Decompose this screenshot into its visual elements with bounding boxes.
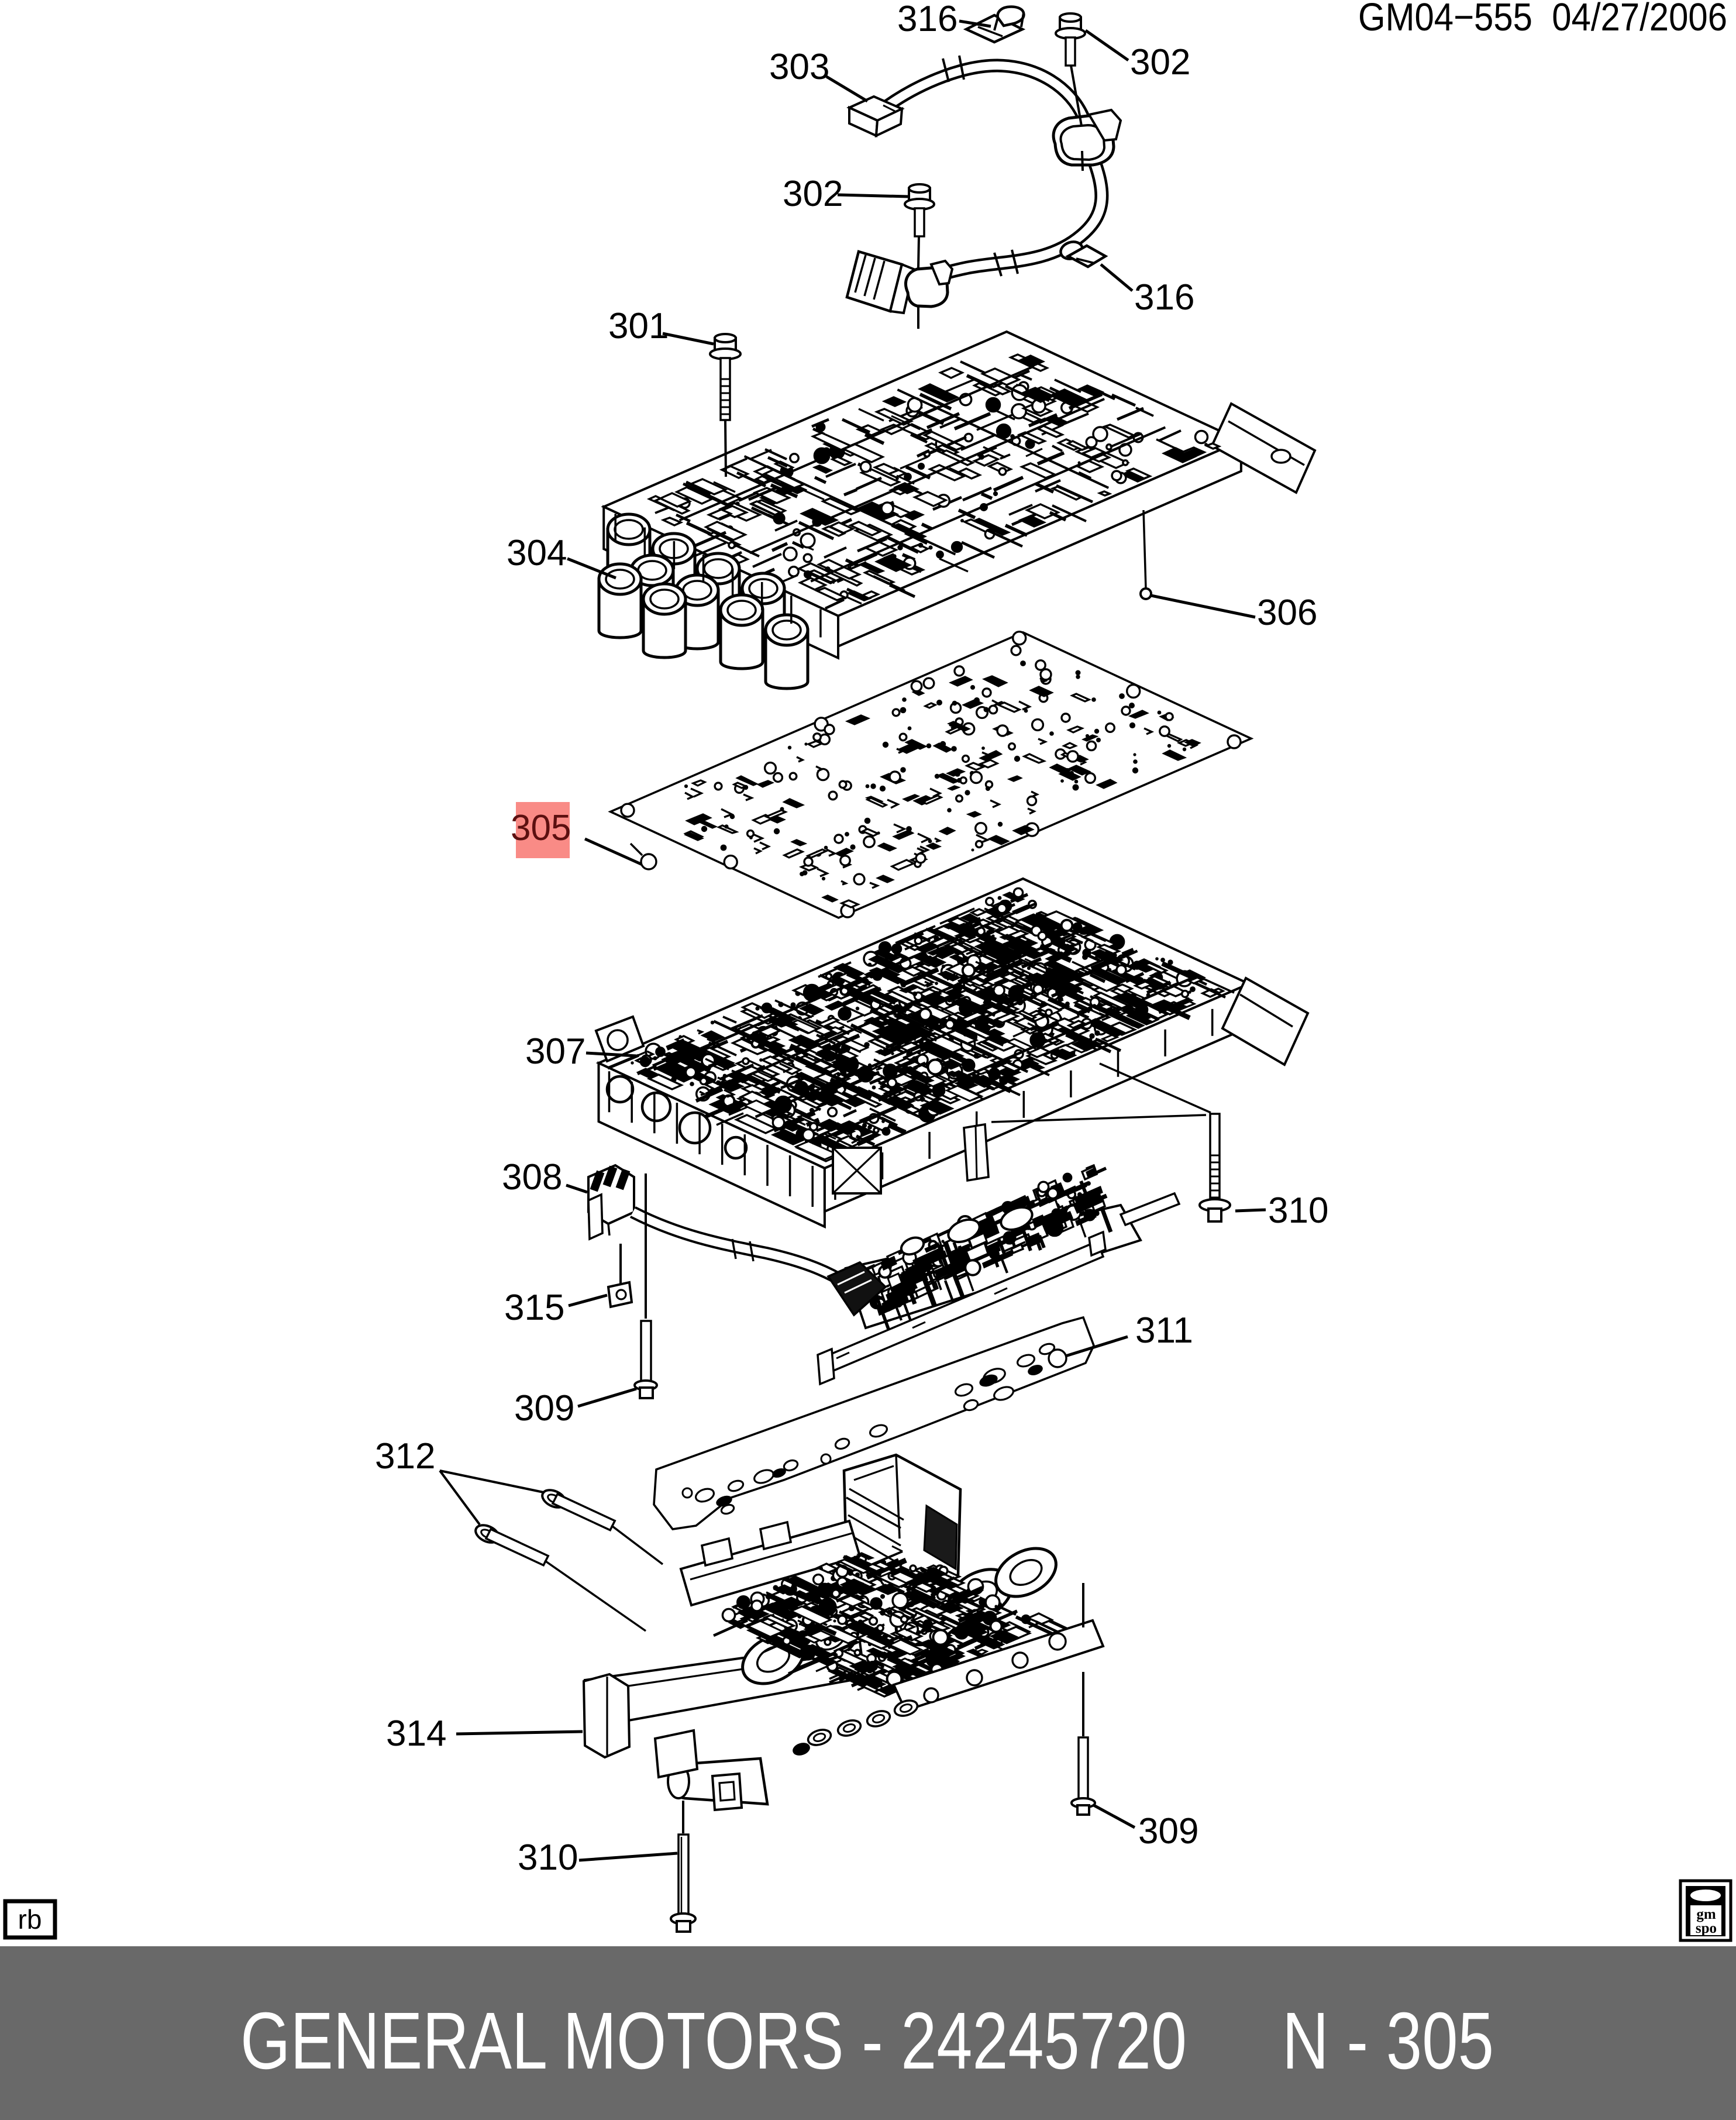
svg-text:315: 315 xyxy=(504,1288,564,1328)
svg-text:310: 310 xyxy=(518,1837,578,1878)
svg-text:314: 314 xyxy=(386,1713,446,1754)
svg-text:302: 302 xyxy=(783,174,843,214)
svg-text:316: 316 xyxy=(1134,277,1194,318)
svg-text:rb: rb xyxy=(18,1904,42,1935)
svg-text:309: 309 xyxy=(514,1388,574,1429)
svg-text:301: 301 xyxy=(608,306,669,346)
svg-text:GM04−555 04/27/2006: GM04−555 04/27/2006 xyxy=(1358,0,1727,39)
svg-text:305: 305 xyxy=(511,808,571,848)
svg-text:spo: spo xyxy=(1696,1921,1717,1936)
svg-text:307: 307 xyxy=(525,1031,585,1072)
svg-text:310: 310 xyxy=(1268,1190,1328,1231)
svg-text:311: 311 xyxy=(1135,1310,1193,1351)
svg-text:306: 306 xyxy=(1257,593,1317,633)
svg-text:gm: gm xyxy=(1696,1906,1716,1922)
svg-text:316: 316 xyxy=(897,0,957,39)
svg-text:312: 312 xyxy=(375,1436,435,1477)
svg-text:309: 309 xyxy=(1138,1811,1198,1851)
svg-text:302: 302 xyxy=(1130,42,1190,82)
svg-text:303: 303 xyxy=(769,47,829,87)
svg-text:304: 304 xyxy=(507,533,567,573)
svg-text:N - 305: N - 305 xyxy=(1282,1996,1494,2086)
svg-text:GENERAL MOTORS - 24245720: GENERAL MOTORS - 24245720 xyxy=(240,1996,1187,2086)
svg-text:308: 308 xyxy=(502,1157,562,1197)
